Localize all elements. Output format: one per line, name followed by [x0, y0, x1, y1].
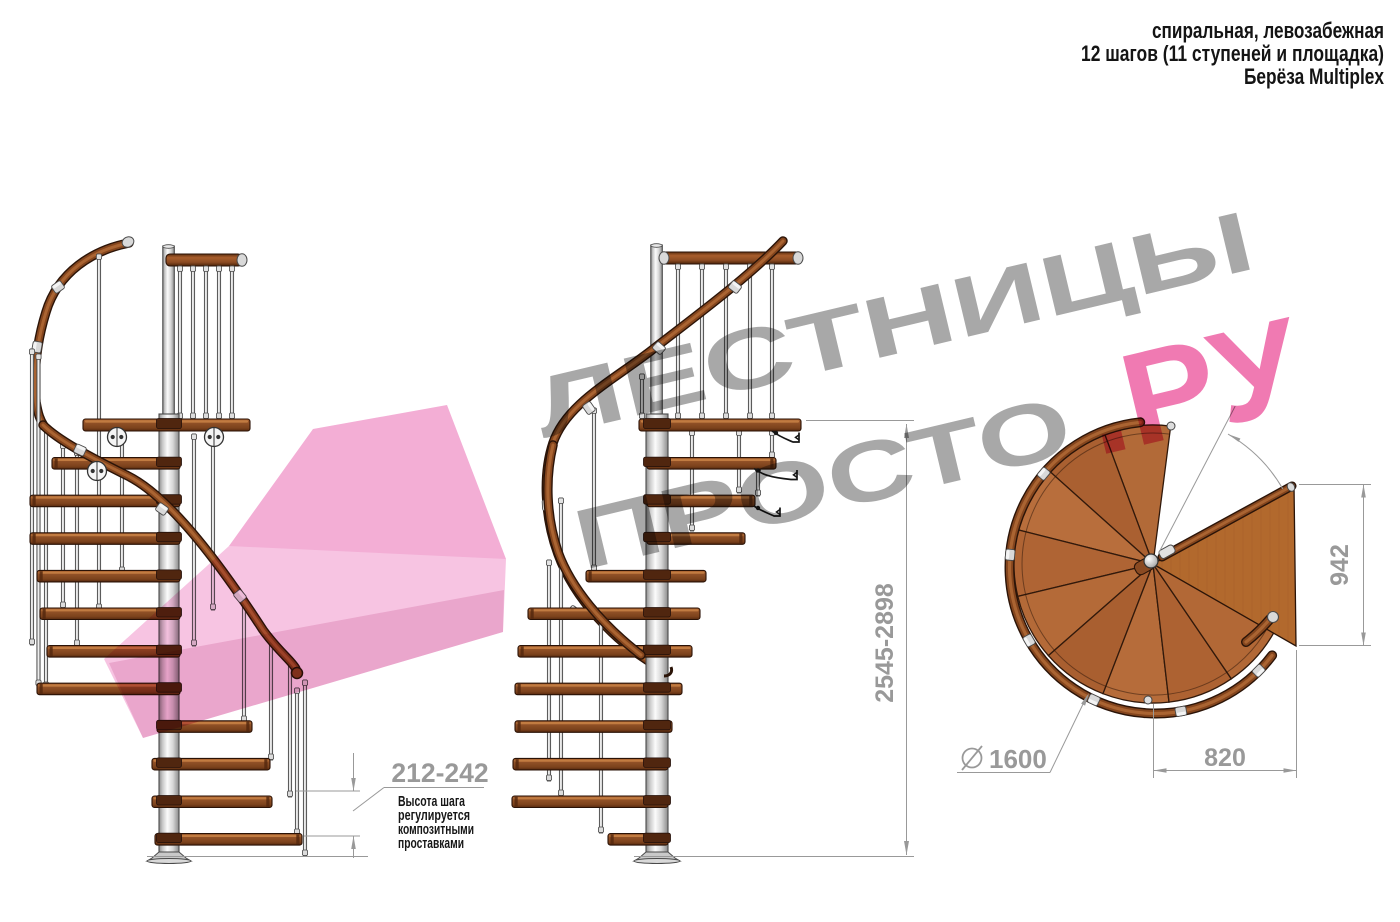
svg-text:942: 942 — [1326, 544, 1354, 586]
svg-text:212-242: 212-242 — [391, 758, 488, 788]
svg-text:820: 820 — [1204, 744, 1246, 772]
svg-text:12 шагов (11 ступеней и площад: 12 шагов (11 ступеней и площадка) — [1081, 41, 1384, 66]
svg-text:спиральная, левозабежная: спиральная, левозабежная — [1152, 18, 1384, 43]
svg-text:проставками: проставками — [398, 836, 464, 852]
svg-text:2545-2898: 2545-2898 — [871, 583, 899, 703]
svg-text:1600: 1600 — [989, 744, 1047, 774]
svg-text:Берёза Multiplex: Берёза Multiplex — [1244, 64, 1384, 89]
